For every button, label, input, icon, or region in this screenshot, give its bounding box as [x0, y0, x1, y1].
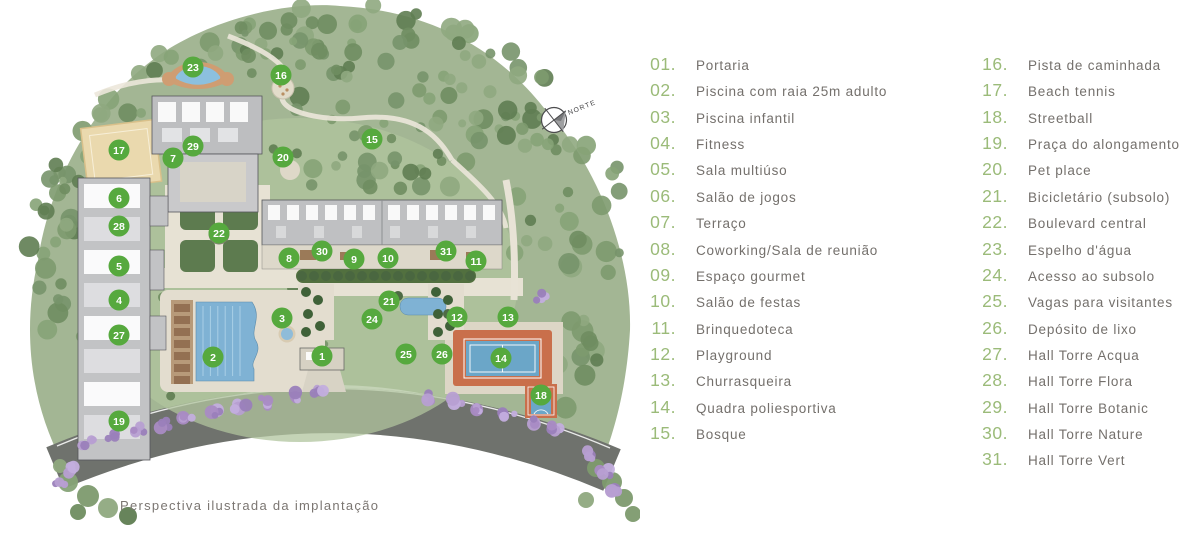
roof-unit	[352, 226, 362, 238]
legend-item-number: 16.	[968, 54, 1008, 75]
legend-column-2: 16.Pista de caminhada17.Beach tennis18.S…	[968, 54, 1180, 476]
map-marker-number: 11	[470, 256, 481, 268]
tree	[471, 132, 488, 149]
compass-label: NORTE	[567, 100, 597, 117]
legend-item: 27.Hall Torre Acqua	[968, 344, 1180, 370]
hedge-shrub	[429, 271, 439, 281]
tree	[452, 36, 466, 50]
tree	[525, 215, 536, 226]
map-marker-21: 21	[379, 291, 400, 312]
legend-item: 12.Playground	[636, 344, 887, 370]
jacaranda-bush	[446, 392, 460, 406]
roof-unit	[230, 102, 248, 122]
tree	[164, 50, 179, 65]
roof-unit	[344, 205, 356, 220]
jacaranda-bush	[230, 404, 240, 414]
legend-item: 30.Hall Torre Nature	[968, 423, 1180, 449]
jacaranda-bush	[130, 427, 137, 434]
legend-item-number: 23.	[968, 239, 1008, 260]
map-marker-11: 11	[466, 251, 487, 272]
map-marker-25: 25	[396, 344, 417, 365]
map-marker-number: 25	[400, 349, 412, 361]
roof-unit	[162, 128, 182, 142]
tree	[247, 68, 257, 78]
tree	[241, 30, 248, 37]
legend-item-number: 17.	[968, 80, 1008, 101]
tree	[601, 265, 616, 280]
map-marker-number: 31	[440, 246, 452, 258]
roof-unit	[466, 226, 476, 238]
tree	[555, 204, 564, 213]
legend-item-number: 04.	[636, 133, 676, 154]
map-marker-13: 13	[498, 307, 519, 328]
legend-item-number: 11.	[636, 318, 676, 339]
jacaranda-bush	[499, 412, 509, 422]
map-marker-number: 20	[277, 152, 289, 164]
tree	[440, 177, 460, 197]
tree	[32, 281, 46, 295]
legend-item: 08.Coworking/Sala de reunião	[636, 239, 887, 265]
tree	[590, 353, 603, 366]
tree	[516, 123, 528, 135]
hedge-shrub	[441, 271, 451, 281]
map-marker-number: 18	[535, 390, 547, 402]
map-marker-24: 24	[362, 309, 383, 330]
tree	[472, 54, 487, 69]
tree	[48, 302, 69, 323]
legend-item-label: Espelho d'água	[1028, 243, 1132, 258]
hedge-shrub	[405, 271, 415, 281]
legend-item-label: Fitness	[696, 137, 745, 152]
tree	[412, 177, 430, 195]
tree	[440, 87, 457, 104]
map-marker-number: 6	[116, 193, 122, 205]
legend-item: 22.Boulevard central	[968, 212, 1180, 238]
pool-lounger	[174, 364, 190, 372]
legend-item-number: 05.	[636, 159, 676, 180]
legend-item-label: Sala multiúso	[696, 163, 787, 178]
map-marker-number: 17	[113, 145, 125, 157]
map-marker-number: 3	[279, 313, 285, 325]
map-marker-18: 18	[531, 385, 552, 406]
tree	[538, 236, 553, 251]
adult-lap-pool	[171, 300, 258, 384]
tree	[502, 42, 520, 60]
legend-item-number: 20.	[968, 159, 1008, 180]
tree	[259, 22, 277, 40]
legend-item-number: 06.	[636, 186, 676, 207]
map-marker-9: 9	[344, 249, 365, 270]
map-marker-1: 1	[312, 346, 333, 367]
pool-lounger	[174, 352, 190, 360]
tree	[281, 23, 293, 35]
legend-column-1: 01.Portaria02.Piscina com raia 25m adult…	[636, 54, 887, 449]
map-marker-number: 21	[383, 296, 395, 308]
legend-item-number: 02.	[636, 80, 676, 101]
map-marker-7: 7	[163, 148, 184, 169]
tree	[423, 93, 435, 105]
tree	[306, 179, 317, 190]
roof-unit	[84, 382, 140, 406]
implantation-plan-page: 1234567891011121314151617181920212223242…	[0, 0, 1200, 546]
roof-unit	[182, 102, 200, 122]
legend-item-label: Playground	[696, 348, 772, 363]
legend-item-label: Pet place	[1028, 163, 1092, 178]
tree	[241, 48, 256, 63]
tree	[70, 504, 86, 520]
legend-item: 13.Churrasqueira	[636, 370, 887, 396]
jacaranda-bush	[547, 420, 557, 430]
tree	[392, 35, 407, 50]
roof-unit	[158, 102, 176, 122]
tree	[518, 139, 532, 153]
plan-caption: Perspectiva ilustrada da implantação	[120, 498, 379, 513]
tree	[98, 498, 118, 518]
map-marker-20: 20	[273, 147, 294, 168]
map-marker-2: 2	[203, 347, 224, 368]
legend-item-label: Hall Torre Nature	[1028, 427, 1143, 442]
legend-item-label: Brinquedoteca	[696, 322, 793, 337]
jacaranda-bush	[582, 445, 593, 456]
map-marker-4: 4	[109, 290, 130, 311]
hedge-shrub	[345, 271, 355, 281]
jacaranda-bush	[289, 386, 302, 399]
tree	[55, 278, 66, 289]
tree	[534, 70, 549, 85]
tree	[338, 151, 348, 161]
legend-item: 25.Vagas para visitantes	[968, 291, 1180, 317]
legend-item: 29.Hall Torre Botanic	[968, 397, 1180, 423]
map-marker-number: 9	[351, 254, 357, 266]
legend-item-number: 18.	[968, 107, 1008, 128]
legend-item-number: 22.	[968, 212, 1008, 233]
tree	[458, 119, 466, 127]
legend-item: 19.Praça do alongamento	[968, 133, 1180, 159]
roof-unit	[390, 226, 400, 238]
palm-tree	[433, 327, 443, 337]
legend-item-number: 03.	[636, 107, 676, 128]
jacaranda-bush	[158, 419, 166, 427]
pool-lounger	[174, 304, 190, 312]
jacaranda-bush	[597, 468, 609, 480]
map-marker-14: 14	[491, 348, 512, 369]
map-marker-10: 10	[378, 248, 399, 269]
tree	[49, 158, 64, 173]
tree	[118, 103, 137, 122]
tree	[166, 392, 175, 401]
palm-tree	[313, 295, 323, 305]
map-marker-number: 5	[116, 261, 122, 273]
legend-item-number: 19.	[968, 133, 1008, 154]
jacaranda-bush	[67, 461, 79, 473]
legend-item-label: Vagas para visitantes	[1028, 295, 1173, 310]
tree	[578, 492, 594, 508]
map-marker-number: 12	[451, 312, 463, 324]
pool-lounger	[174, 376, 190, 384]
legend-item-label: Boulevard central	[1028, 216, 1147, 231]
jacaranda-bush	[80, 441, 89, 450]
map-marker-number: 16	[275, 70, 287, 82]
map-marker-15: 15	[362, 129, 383, 150]
tree	[295, 59, 306, 70]
tree	[35, 258, 56, 279]
tree	[388, 151, 403, 166]
tree	[344, 43, 362, 61]
tree	[521, 235, 532, 246]
jacaranda-bush	[530, 415, 538, 423]
map-marker-number: 2	[210, 352, 216, 364]
map-marker-number: 15	[366, 134, 378, 146]
legend-item: 06.Salão de jogos	[636, 186, 887, 212]
hedge-shrub	[381, 271, 391, 281]
legend-item: 02.Piscina com raia 25m adulto	[636, 80, 887, 106]
legend-item-label: Terraço	[696, 216, 747, 231]
roof-unit	[407, 205, 419, 220]
roof-unit	[218, 128, 238, 142]
jacaranda-bush	[537, 289, 546, 298]
roof-unit	[268, 205, 280, 220]
legend-item: 09.Espaço gourmet	[636, 265, 887, 291]
legend-item-number: 27.	[968, 344, 1008, 365]
map-marker-31: 31	[436, 241, 457, 262]
tree	[419, 167, 431, 179]
map-marker-5: 5	[109, 256, 130, 277]
map-marker-6: 6	[109, 188, 130, 209]
roof-unit	[276, 226, 286, 238]
map-marker-number: 28	[113, 221, 125, 233]
legend-item-number: 01.	[636, 54, 676, 75]
legend-item-label: Churrasqueira	[696, 374, 792, 389]
legend-item-number: 15.	[636, 423, 676, 444]
tree	[59, 183, 70, 194]
map-marker-number: 19	[113, 416, 125, 428]
map-marker-number: 29	[187, 141, 199, 153]
legend-item: 11.Brinquedoteca	[636, 318, 887, 344]
tree	[592, 196, 612, 216]
legend-item-label: Espaço gourmet	[696, 269, 806, 284]
legend-item-number: 09.	[636, 265, 676, 286]
legend-item-number: 12.	[636, 344, 676, 365]
roof-unit	[388, 205, 400, 220]
legend-item-label: Praça do alongamento	[1028, 137, 1180, 152]
siteplan-illustration: 1234567891011121314151617181920212223242…	[0, 0, 640, 546]
map-marker-number: 30	[316, 246, 328, 258]
roof-unit	[206, 102, 224, 122]
tree	[625, 506, 640, 522]
tree	[485, 49, 495, 59]
roof-unit	[428, 226, 438, 238]
roof-unit	[483, 205, 495, 220]
legend-item-label: Beach tennis	[1028, 84, 1116, 99]
tree	[429, 117, 444, 132]
tree	[615, 248, 624, 257]
legend-item-label: Portaria	[696, 58, 750, 73]
legend-item-label: Acesso ao subsolo	[1028, 269, 1155, 284]
roof-unit	[84, 349, 140, 373]
legend-item: 10.Salão de festas	[636, 291, 887, 317]
tree	[417, 71, 428, 82]
legend-item-label: Pista de caminhada	[1028, 58, 1161, 73]
tree	[38, 203, 55, 220]
roof-unit	[287, 205, 299, 220]
tree	[605, 167, 619, 181]
tree	[460, 50, 471, 61]
jacaranda-bush	[533, 297, 540, 304]
tree	[377, 53, 394, 70]
tree	[509, 66, 527, 84]
tree	[349, 14, 368, 33]
tree	[394, 182, 407, 195]
hedge-shrub	[357, 271, 367, 281]
tree	[289, 37, 297, 45]
map-marker-number: 23	[187, 62, 199, 74]
tree	[59, 177, 67, 185]
tree	[208, 45, 224, 61]
map-marker-30: 30	[312, 241, 333, 262]
tree	[484, 85, 497, 98]
legend-item-number: 14.	[636, 397, 676, 418]
hedge-shrub	[321, 271, 331, 281]
tree	[396, 11, 415, 30]
legend-item-number: 07.	[636, 212, 676, 233]
roof-unit	[363, 205, 375, 220]
map-marker-number: 27	[113, 330, 125, 342]
map-marker-16: 16	[271, 65, 292, 86]
map-marker-number: 13	[502, 312, 514, 324]
tree	[53, 294, 63, 304]
legend-item-number: 21.	[968, 186, 1008, 207]
tree	[388, 92, 404, 108]
legend-item-label: Quadra poliesportiva	[696, 401, 837, 416]
tree	[60, 218, 74, 232]
tree	[611, 183, 628, 200]
legend-item-label: Bicicletário (subsolo)	[1028, 190, 1170, 205]
legend-item-number: 08.	[636, 239, 676, 260]
jacaranda-bush	[180, 413, 188, 421]
map-marker-8: 8	[279, 248, 300, 269]
map-marker-29: 29	[183, 136, 204, 157]
tree	[596, 241, 617, 262]
palm-tree	[315, 321, 325, 331]
legend-item: 03.Piscina infantil	[636, 107, 887, 133]
roof-unit	[464, 205, 476, 220]
jacaranda-bush	[239, 399, 252, 412]
legend-item-label: Streetball	[1028, 111, 1093, 126]
tree	[555, 397, 577, 419]
map-marker-number: 14	[495, 353, 507, 365]
map-marker-12: 12	[447, 307, 468, 328]
legend-item: 31.Hall Torre Vert	[968, 449, 1180, 475]
tree	[497, 126, 516, 145]
legend-item: 23.Espelho d'água	[968, 239, 1180, 265]
legend-item-label: Salão de jogos	[696, 190, 797, 205]
palm-tree	[431, 287, 441, 297]
map-marker-3: 3	[272, 308, 293, 329]
roof-unit	[325, 205, 337, 220]
tree	[433, 149, 443, 159]
tree	[563, 187, 573, 197]
map-marker-number: 1	[319, 351, 325, 363]
jacaranda-bush	[212, 412, 219, 419]
jacaranda-bush	[188, 414, 196, 422]
tree	[574, 365, 595, 386]
legend-item: 24.Acesso ao subsolo	[968, 265, 1180, 291]
legend-item: 05.Sala multiúso	[636, 159, 887, 185]
tree	[569, 231, 587, 249]
map-marker-number: 8	[286, 253, 292, 265]
legend-item: 18.Streetball	[968, 107, 1180, 133]
legend-item-number: 31.	[968, 449, 1008, 470]
legend-item-label: Hall Torre Flora	[1028, 374, 1133, 389]
tree	[402, 164, 419, 181]
jacaranda-bush	[612, 486, 622, 496]
pool-lounger	[174, 328, 190, 336]
legend-item-label: Hall Torre Vert	[1028, 453, 1125, 468]
hedge-shrub	[309, 271, 319, 281]
tree	[371, 162, 389, 180]
legend-item-label: Hall Torre Botanic	[1028, 401, 1149, 416]
palm-tree	[303, 309, 313, 319]
hedge-shrub	[453, 271, 463, 281]
legend-item-label: Piscina com raia 25m adulto	[696, 84, 887, 99]
map-marker-19: 19	[109, 411, 130, 432]
tree	[525, 102, 537, 114]
compass-north-icon: NORTE	[536, 100, 620, 150]
legend-item: 28.Hall Torre Flora	[968, 370, 1180, 396]
legend-item-number: 30.	[968, 423, 1008, 444]
tree	[92, 104, 111, 123]
tree	[77, 485, 99, 507]
tree	[19, 236, 40, 257]
tree	[311, 43, 328, 60]
roof-unit	[426, 205, 438, 220]
legend-item-label: Bosque	[696, 427, 747, 442]
tree	[50, 237, 61, 248]
legend-item: 15.Bosque	[636, 423, 887, 449]
roof-unit	[445, 205, 457, 220]
map-marker-22: 22	[209, 223, 230, 244]
palm-tree	[433, 309, 443, 319]
tree	[363, 180, 378, 195]
hedge-shrub	[417, 271, 427, 281]
legend-item: 16.Pista de caminhada	[968, 54, 1180, 80]
map-marker-number: 7	[170, 153, 176, 165]
hedge-shrub	[333, 271, 343, 281]
roof-unit	[314, 226, 324, 238]
tree	[560, 212, 579, 231]
map-marker-17: 17	[109, 140, 130, 161]
tree	[444, 74, 455, 85]
legend-item-number: 25.	[968, 291, 1008, 312]
tree	[303, 159, 322, 178]
legend-item-number: 26.	[968, 318, 1008, 339]
legend-item: 21.Bicicletário (subsolo)	[968, 186, 1180, 212]
tree	[335, 100, 350, 115]
legend-item-number: 13.	[636, 370, 676, 391]
tree	[37, 320, 57, 340]
jacaranda-bush	[473, 407, 480, 414]
palm-tree	[301, 327, 311, 337]
pool-lounger	[174, 340, 190, 348]
jacaranda-bush	[421, 393, 434, 406]
map-marker-23: 23	[183, 57, 204, 78]
legend-item: 01.Portaria	[636, 54, 887, 80]
legend-item: 04.Fitness	[636, 133, 887, 159]
legend-item: 26.Depósito de lixo	[968, 318, 1180, 344]
tree	[498, 101, 517, 120]
hedge-shrub	[393, 271, 403, 281]
tree	[561, 311, 581, 331]
